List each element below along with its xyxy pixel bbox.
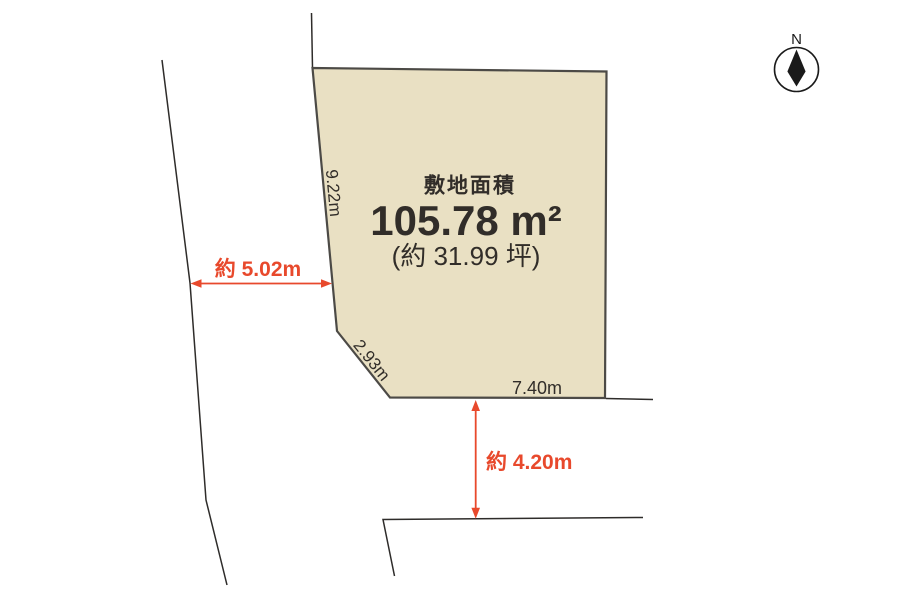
dimension-left-road: 約 5.02m: [191, 257, 333, 288]
arrowhead-up-icon: [471, 400, 480, 411]
right-boundary-line: [606, 399, 653, 400]
dimension-bottom-road-label: 約 4.20m: [486, 450, 572, 474]
arrowhead-right-icon: [321, 279, 332, 288]
area-value: 105.78 m²: [370, 197, 561, 244]
land-plot-diagram: 9.22m 2.93m 7.40m 敷地面積 105.78 m² (約 31.9…: [0, 0, 900, 600]
edge-label-bottom: 7.40m: [512, 378, 562, 398]
compass-north-label: N: [791, 31, 802, 48]
dimension-left-road-label: 約 5.02m: [215, 257, 301, 281]
compass-needle-icon: [787, 50, 805, 87]
area-title: 敷地面積: [424, 174, 516, 198]
area-tsubo: (約 31.99 坪): [392, 241, 541, 271]
arrowhead-down-icon: [471, 508, 480, 519]
top-boundary-line: [312, 13, 313, 68]
compass: N: [775, 31, 819, 92]
dimension-bottom-road: 約 4.20m: [471, 400, 572, 519]
left-road-line: [162, 60, 227, 585]
arrowhead-left-icon: [191, 279, 202, 288]
lower-road-line: [383, 518, 643, 577]
site-plan-svg: 9.22m 2.93m 7.40m 敷地面積 105.78 m² (約 31.9…: [0, 0, 900, 600]
